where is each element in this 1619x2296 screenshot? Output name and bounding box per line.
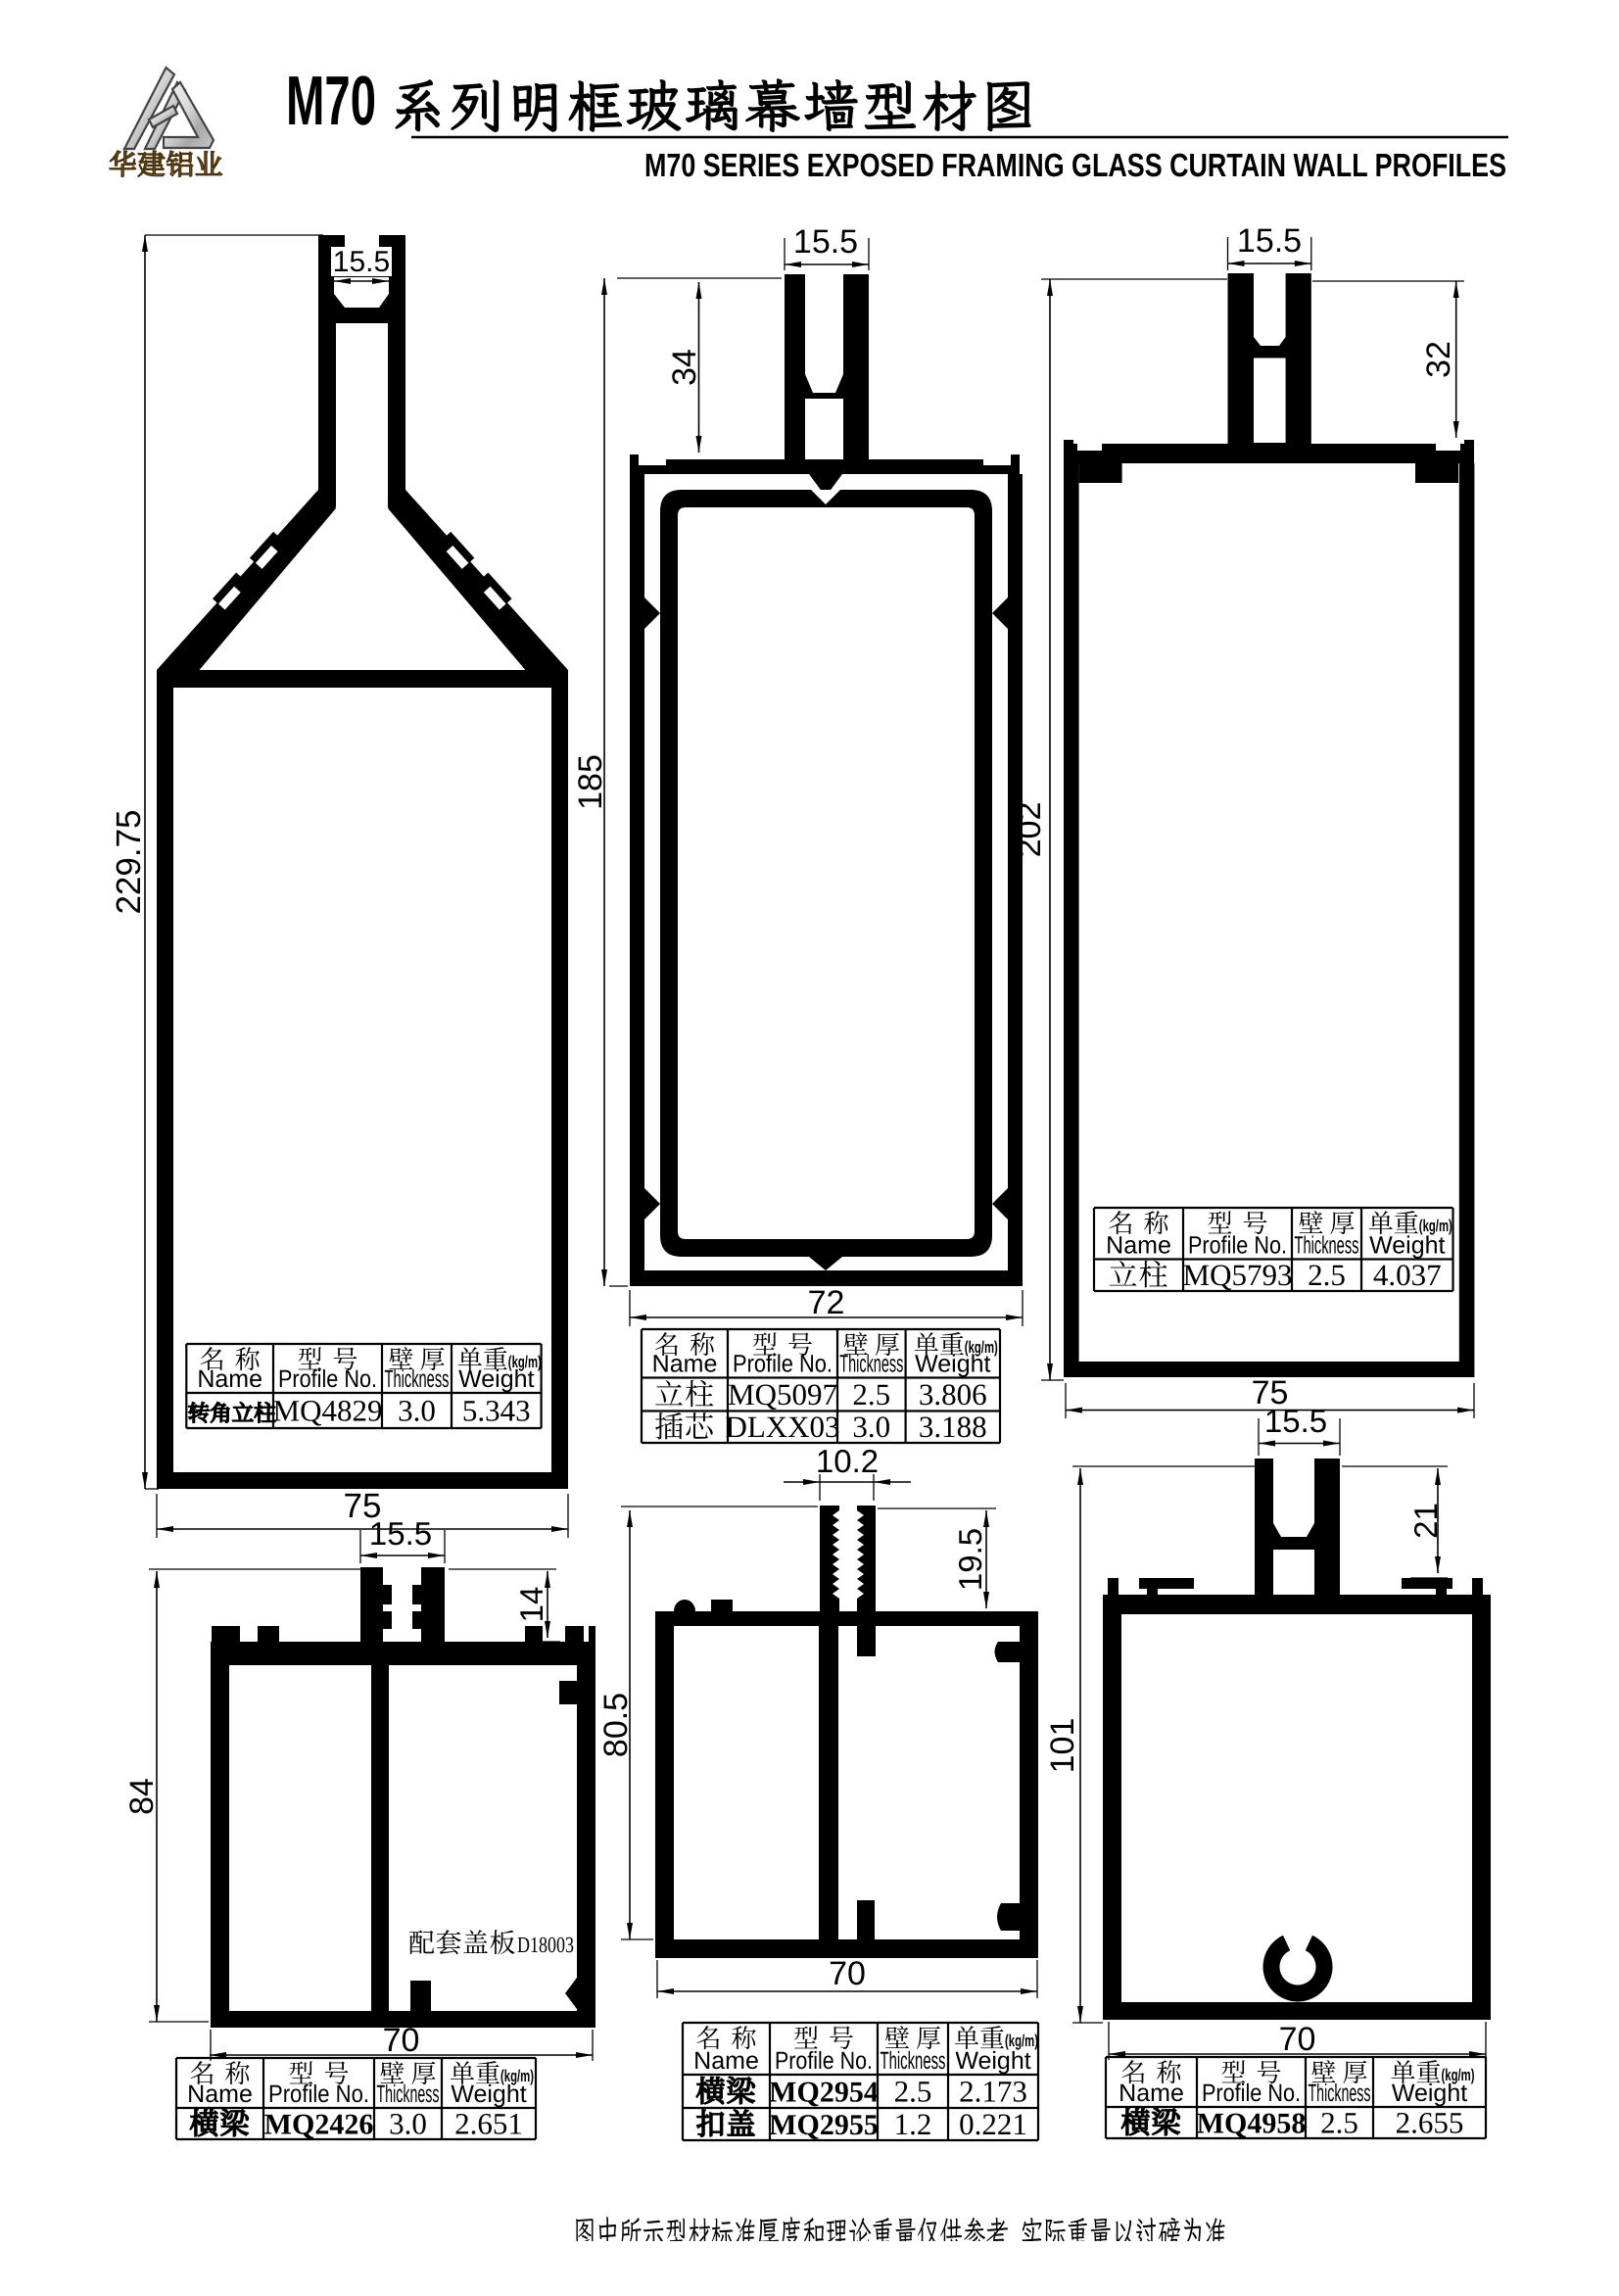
svg-text:70: 70 [1279,2021,1316,2058]
svg-text:14: 14 [513,1587,549,1623]
svg-text:15.5: 15.5 [1237,222,1302,260]
svg-text:Profile No.: Profile No. [1202,2080,1301,2107]
svg-text:Name: Name [693,2047,759,2075]
svg-text:DLXX03: DLXX03 [725,1410,839,1444]
svg-text:M70: M70 [286,63,376,140]
svg-text:2.655: 2.655 [1396,2106,1464,2140]
svg-text:Profile No.: Profile No. [733,1351,833,1378]
svg-text:MQ4829: MQ4829 [273,1394,383,1428]
svg-text:Name: Name [1106,1232,1171,1260]
svg-text:Thickness: Thickness [1295,1232,1359,1260]
svg-text:101: 101 [1044,1718,1081,1774]
svg-text:0.221: 0.221 [959,2107,1027,2141]
svg-text:70: 70 [829,1955,866,1992]
svg-text:19.5: 19.5 [952,1528,988,1591]
svg-text:80.5: 80.5 [597,1693,635,1757]
svg-text:Thickness: Thickness [881,2047,946,2075]
svg-text:2.5: 2.5 [1320,2106,1358,2140]
svg-text:4.037: 4.037 [1373,1258,1442,1292]
svg-text:Weight: Weight [451,2081,526,2108]
svg-text:MQ5097: MQ5097 [728,1377,837,1411]
svg-text:3.0: 3.0 [852,1410,890,1444]
svg-text:15.5: 15.5 [793,223,858,261]
svg-text:M70 SERIES EXPOSED FRAMING GLA: M70 SERIES EXPOSED FRAMING GLASS CURTAIN… [644,148,1506,184]
svg-text:202: 202 [1011,802,1048,858]
svg-text:185: 185 [572,754,609,810]
svg-text:Thickness: Thickness [377,2081,440,2108]
svg-text:Weight: Weight [915,1351,990,1378]
svg-text:3.0: 3.0 [398,1394,436,1428]
svg-text:MQ2954: MQ2954 [769,2077,879,2109]
svg-text:Thickness: Thickness [385,1365,450,1393]
svg-text:15.5: 15.5 [1264,1403,1327,1439]
svg-text:MQ2426: MQ2426 [264,2109,374,2141]
svg-text:84: 84 [123,1778,161,1815]
svg-text:Name: Name [197,1365,262,1393]
svg-text:34: 34 [666,349,703,386]
svg-text:21: 21 [1407,1503,1444,1539]
svg-text:3.0: 3.0 [389,2107,427,2141]
svg-text:Name: Name [187,2081,253,2108]
svg-text:2.5: 2.5 [894,2075,932,2109]
svg-text:15.5: 15.5 [369,1515,432,1552]
svg-text:D18003: D18003 [517,1933,574,1957]
svg-text:MQ5793: MQ5793 [1183,1258,1293,1292]
svg-text:3.806: 3.806 [919,1377,987,1411]
svg-text:10.2: 10.2 [816,1443,879,1479]
svg-text:MQ2955: MQ2955 [769,2109,879,2141]
svg-text:Weight: Weight [955,2047,1030,2075]
svg-text:Profile No.: Profile No. [775,2047,873,2075]
svg-text:Profile No.: Profile No. [278,1365,377,1393]
svg-text:Profile No.: Profile No. [268,2081,369,2108]
svg-text:2.651: 2.651 [454,2107,523,2141]
svg-text:70: 70 [383,2022,420,2059]
svg-text:Weight: Weight [1369,1232,1445,1260]
svg-text:Weight: Weight [1392,2080,1467,2107]
svg-text:Weight: Weight [458,1365,534,1393]
svg-text:1.2: 1.2 [894,2107,932,2141]
svg-text:32: 32 [1420,341,1457,378]
svg-text:Profile No.: Profile No. [1188,1232,1287,1260]
svg-text:5.343: 5.343 [462,1394,531,1428]
svg-text:Thickness: Thickness [839,1351,903,1378]
svg-text:3.188: 3.188 [919,1410,987,1444]
svg-text:Thickness: Thickness [1309,2080,1371,2107]
svg-text:229.75: 229.75 [110,809,148,914]
svg-text:15.5: 15.5 [333,246,390,278]
svg-text:Name: Name [652,1351,718,1378]
svg-text:MQ4958: MQ4958 [1197,2108,1307,2140]
svg-text:Name: Name [1119,2080,1184,2107]
svg-text:72: 72 [808,1284,845,1321]
svg-text:2.173: 2.173 [959,2075,1027,2109]
svg-text:2.5: 2.5 [1308,1258,1346,1292]
svg-text:2.5: 2.5 [852,1377,890,1411]
